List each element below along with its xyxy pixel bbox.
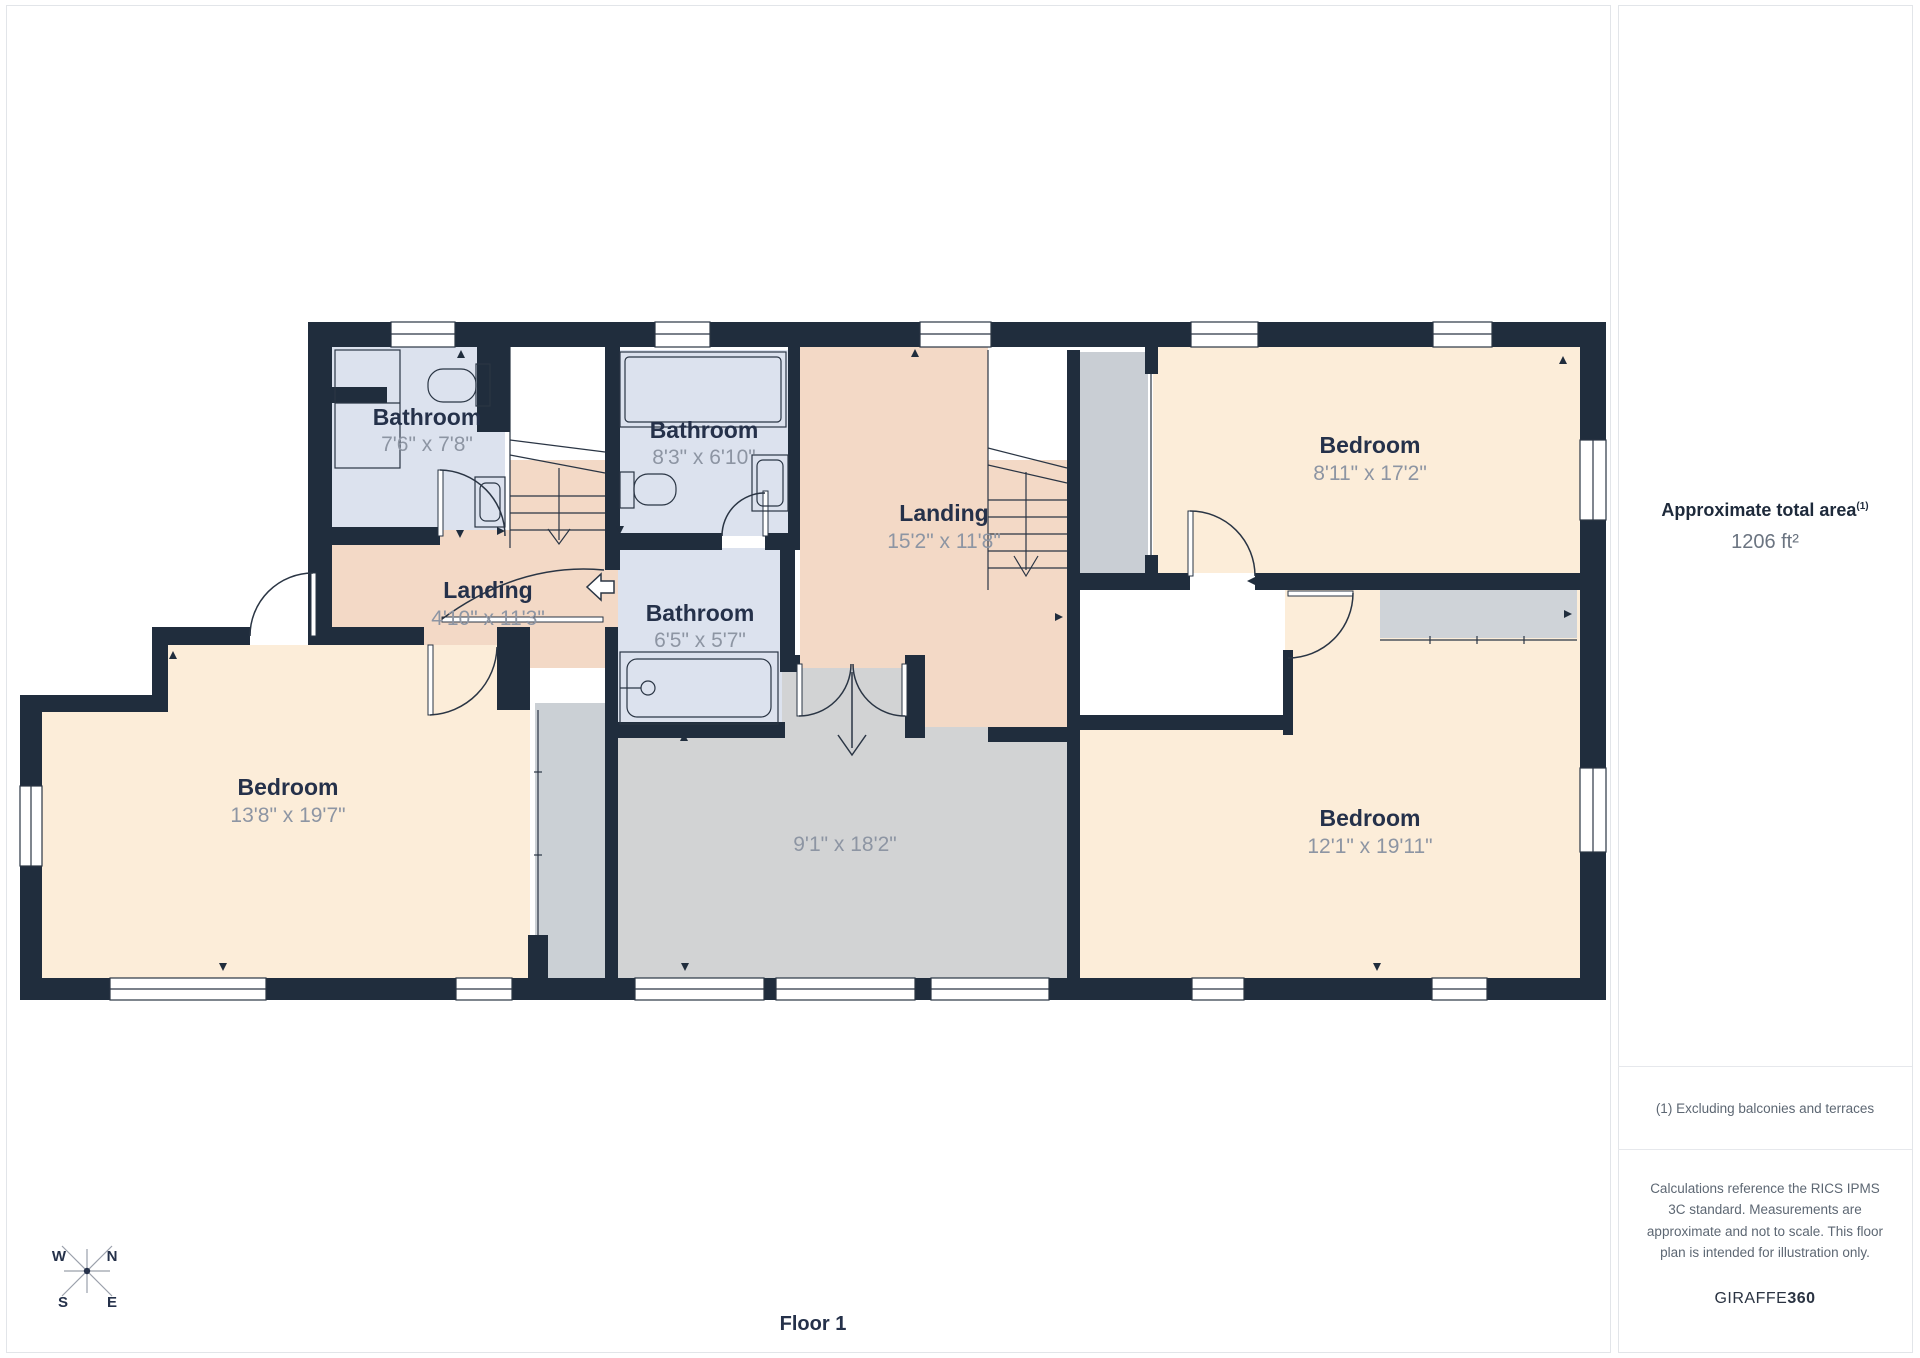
room-label-bathroom-b: Bathroom	[650, 417, 759, 443]
room-dims-bedroom-top-right: 8'11" x 17'2"	[1313, 462, 1427, 485]
window	[456, 978, 512, 1000]
window	[635, 978, 764, 1000]
compass-east: E	[107, 1294, 117, 1311]
window	[1192, 978, 1244, 1000]
room-dims-landing-b: 15'2" x 11'8"	[887, 530, 1001, 553]
window	[1580, 440, 1606, 520]
compass-west: W	[52, 1248, 67, 1265]
room-dims-bedroom-bottom-right: 12'1" x 19'11"	[1307, 835, 1432, 858]
floorplan-page: Bathroom 7'6" x 7'8" Bathroom 8'3" x 6'1…	[0, 0, 1920, 1358]
staircase-left	[510, 347, 605, 550]
window	[920, 322, 991, 347]
room-label-landing-b: Landing	[899, 500, 988, 526]
compass-south: S	[58, 1294, 68, 1311]
door-bedroom-bottom-left	[250, 573, 316, 636]
disclaimer: Calculations reference the RICS IPMS 3C …	[1618, 1149, 1912, 1263]
staircase-right	[988, 347, 1067, 590]
window	[1191, 322, 1258, 347]
window	[20, 786, 42, 866]
room-label-bathroom-a: Bathroom	[373, 404, 482, 430]
window	[776, 978, 915, 1000]
room-label-bedroom-bottom-left: Bedroom	[238, 774, 339, 800]
compass-rose: W N S E	[52, 1246, 118, 1311]
window	[110, 978, 266, 1000]
room-dims-unlabeled: 9'1" x 18'2"	[793, 833, 897, 856]
area-footnote-marker: (1)	[1856, 501, 1868, 512]
room-dims-bathroom-a: 7'6" x 7'8"	[381, 433, 473, 456]
total-area-block: Approximate total area(1) 1206 ft²	[1618, 500, 1912, 554]
window	[1433, 322, 1492, 347]
room-fill-white-closet	[1080, 590, 1283, 715]
window	[391, 322, 455, 347]
window	[655, 322, 710, 347]
room-fill-bedroom-top-right	[1153, 347, 1580, 573]
room-dims-bedroom-bottom-left: 13'8" x 19'7"	[230, 804, 345, 827]
room-label-bedroom-bottom-right: Bedroom	[1320, 805, 1421, 831]
brand-logo: GIRAFFE360	[1618, 1290, 1912, 1308]
room-dims-bathroom-c: 6'5" x 5'7"	[654, 629, 746, 652]
room-label-bedroom-top-right: Bedroom	[1320, 432, 1421, 458]
room-label-bathroom-c: Bathroom	[646, 600, 755, 626]
footnote: (1) Excluding balconies and terraces	[1618, 1066, 1912, 1150]
wardrobe-fill	[1380, 590, 1577, 638]
total-area-title: Approximate total area(1)	[1618, 500, 1912, 521]
total-area-value: 1206 ft²	[1618, 531, 1912, 554]
window	[931, 978, 1049, 1000]
floor-label: Floor 1	[780, 1313, 847, 1335]
window	[1580, 768, 1606, 852]
compass-north: N	[107, 1248, 118, 1265]
room-fill-closet-b	[1078, 352, 1148, 577]
room-dims-landing-a: 4'10" x 11'3"	[431, 607, 545, 630]
room-dims-bathroom-b: 8'3" x 6'10"	[652, 446, 756, 469]
window	[1432, 978, 1487, 1000]
room-label-landing-a: Landing	[443, 577, 532, 603]
